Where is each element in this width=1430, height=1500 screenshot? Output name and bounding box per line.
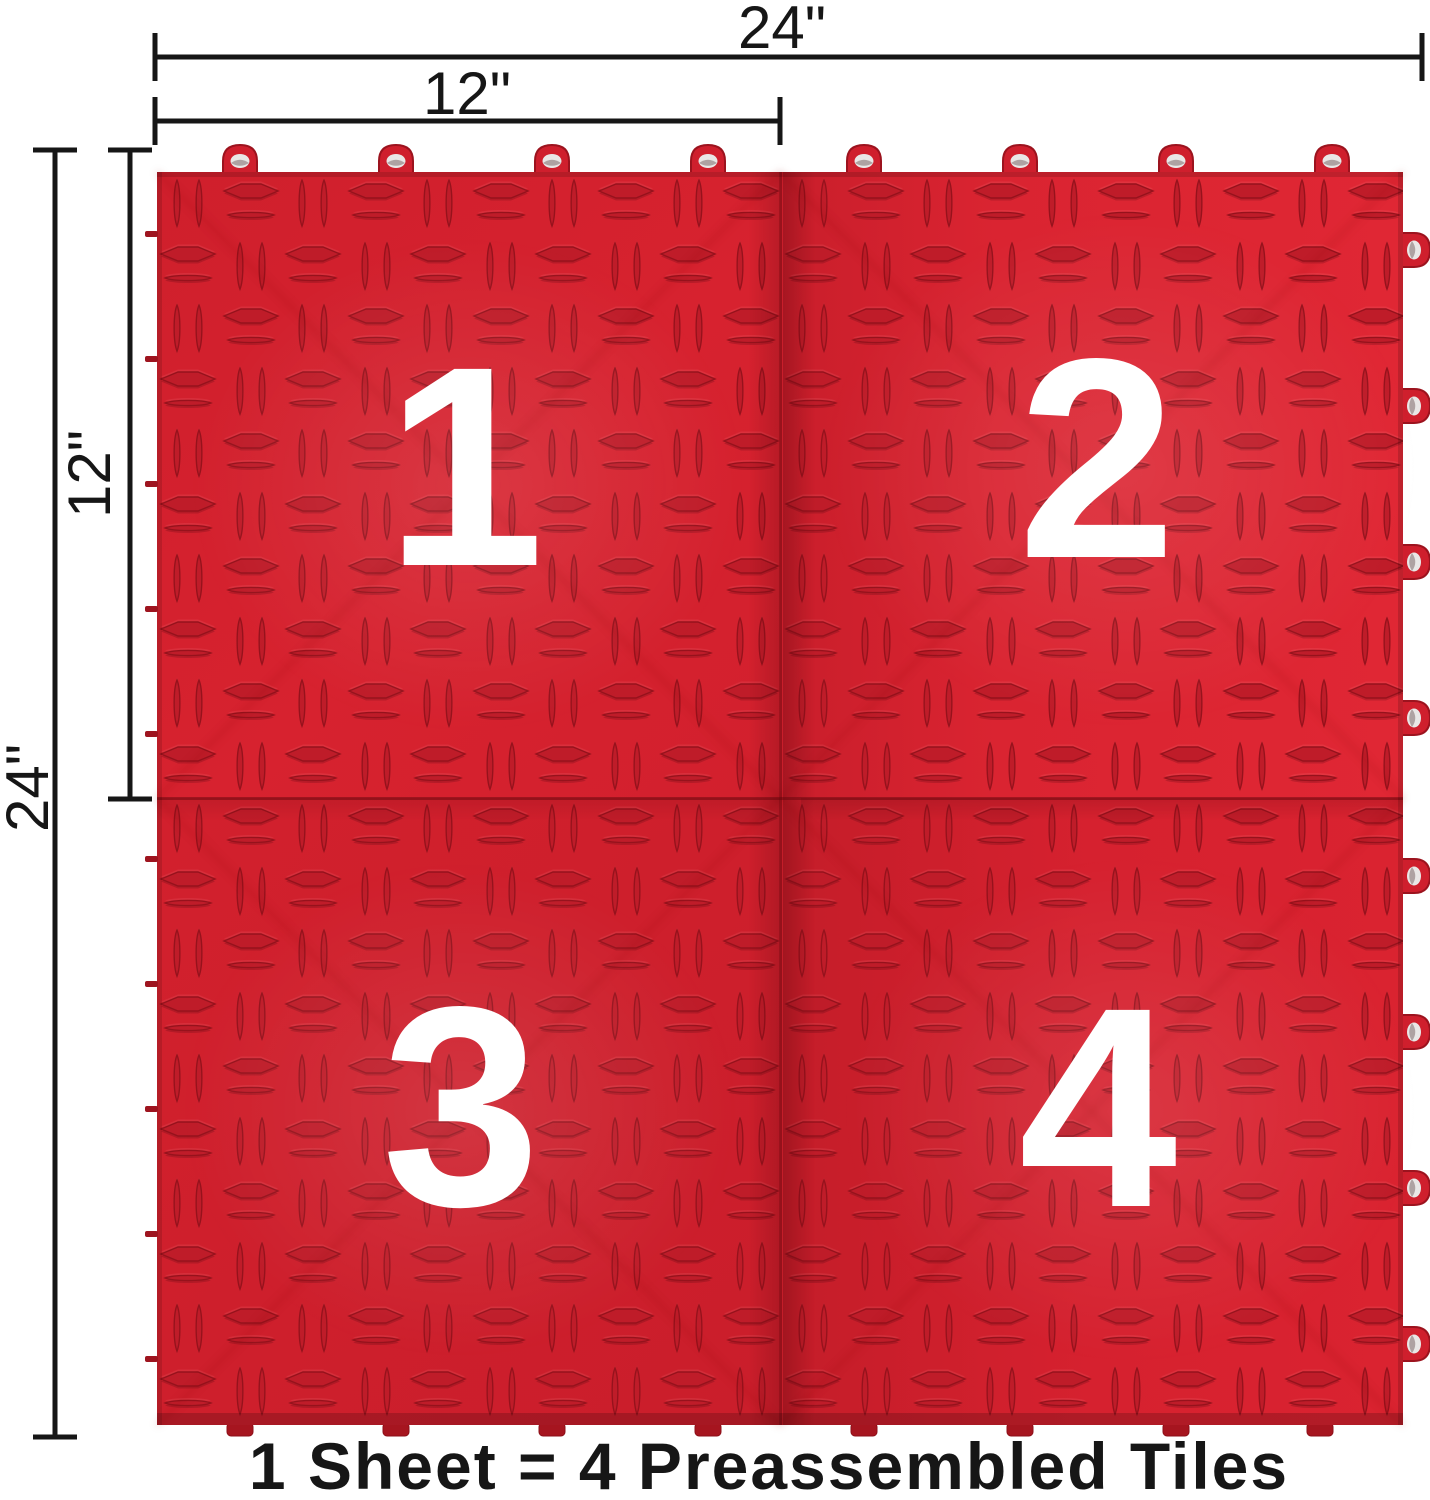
label-width-24in: 24"	[738, 0, 826, 61]
edge-notch	[145, 731, 158, 737]
tile-2-number: 2	[1018, 300, 1177, 618]
tile-4-number: 4	[1019, 949, 1179, 1267]
diagram-canvas: 24" 12" 12" 24"	[0, 0, 1430, 1500]
edge-notch	[145, 981, 158, 987]
tile-sheet-diagram: 24" 12" 12" 24"	[0, 0, 1430, 1500]
tile-3-number: 3	[382, 948, 541, 1266]
tile-sheet: 1 2 3 4	[145, 145, 1430, 1436]
caption: 1 Sheet = 4 Preassembled Tiles	[249, 1429, 1289, 1500]
tile-1-number: 1	[386, 308, 545, 626]
edge-notch	[145, 1356, 158, 1362]
label-half-width-12in: 12"	[423, 60, 511, 127]
edge-notch	[145, 856, 158, 862]
edge-notch	[145, 1231, 158, 1237]
label-height-24in: 24"	[0, 744, 61, 832]
edge-notch	[145, 1106, 158, 1112]
horizontal-seam	[157, 797, 1403, 800]
label-half-height-12in: 12"	[56, 430, 123, 518]
edge-notch	[145, 481, 158, 487]
edge-notch	[145, 606, 158, 612]
edge-notch	[145, 356, 158, 362]
edge-notch	[145, 231, 158, 237]
